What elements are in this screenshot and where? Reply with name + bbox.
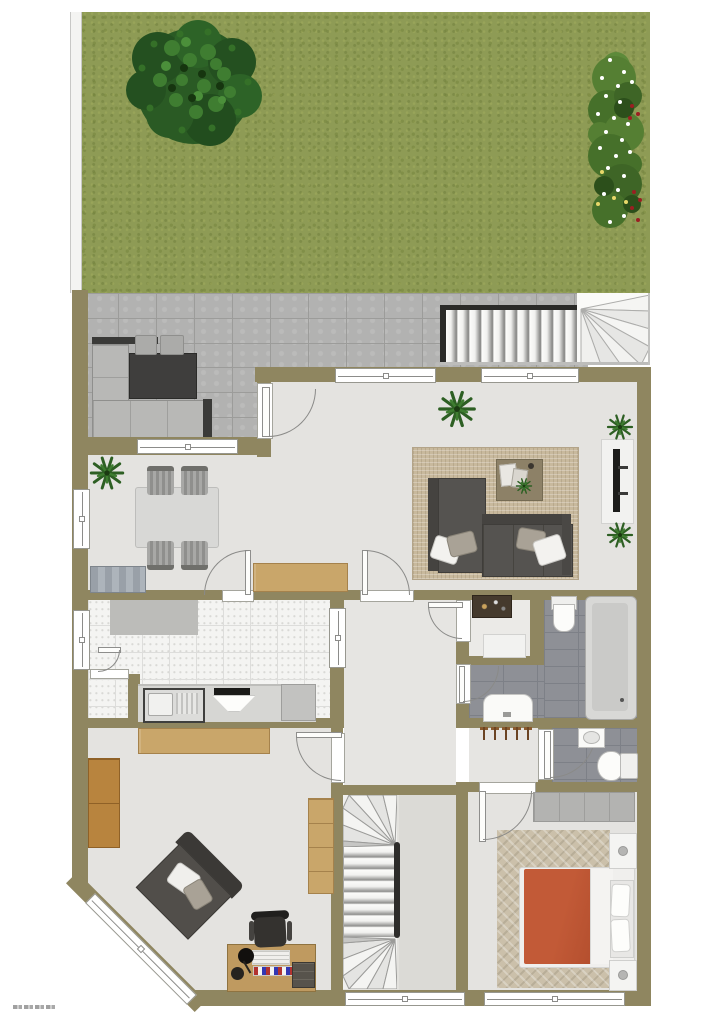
mug	[528, 463, 534, 469]
dining-chair	[147, 466, 174, 495]
nightstand-lamp	[618, 970, 628, 980]
coat-hook-stem	[527, 727, 529, 740]
office-chair-armrest	[249, 921, 254, 941]
garden-flower-bed	[580, 44, 652, 236]
window-kitchen-left	[73, 610, 90, 670]
gray-sideboard	[90, 566, 146, 593]
dining-chair	[181, 541, 208, 570]
sink-drainer	[176, 693, 198, 714]
tv-plant-bottom	[604, 519, 636, 551]
utility-cabinet	[472, 595, 512, 618]
window-living-top-1	[335, 368, 436, 383]
office-sideboard	[138, 728, 270, 754]
desk-item-round	[231, 967, 244, 980]
kitchen-appliance	[281, 684, 316, 721]
exterior-stairs-straight-flight	[446, 310, 577, 363]
bed-duvet	[524, 869, 592, 964]
outdoor-stool	[160, 335, 184, 355]
tv-bracket	[618, 466, 628, 469]
wall-exterior-right	[637, 367, 651, 1006]
desk-colored-sheet	[253, 966, 293, 976]
outdoor-sofa-seat	[92, 400, 205, 440]
floor-plan-canvas	[0, 0, 724, 1024]
tv-screen	[613, 449, 620, 512]
wc-basin-bowl	[583, 731, 600, 744]
dining-chair	[181, 466, 208, 495]
window-stair-room-bottom	[345, 992, 465, 1006]
kitchen-mat	[110, 599, 198, 635]
outdoor-stool	[135, 335, 157, 355]
office-bookshelf	[308, 798, 334, 894]
interior-stairs-straight-flight	[343, 847, 398, 937]
table-plant	[514, 476, 534, 496]
coat-hook-stem	[483, 727, 485, 740]
coat-hook-stem	[505, 727, 507, 740]
stair-landing-floor	[399, 795, 456, 990]
nightstand-lamp	[618, 846, 628, 856]
wc-cistern	[620, 753, 638, 779]
sofa-arm	[562, 514, 571, 575]
tv-bracket	[618, 492, 628, 495]
bedroom-wardrobe	[533, 792, 635, 822]
garden-fence	[70, 12, 82, 293]
garden-tree	[112, 8, 277, 168]
interior-stairs-winder-bottom	[343, 937, 397, 989]
watermark-text	[13, 1005, 55, 1009]
wall-stair-top	[331, 785, 468, 795]
tv-plant-top	[604, 411, 636, 443]
window-living-top-2	[481, 368, 579, 383]
wall-living-top	[255, 367, 650, 382]
exterior-stairs-bottom-edge	[440, 362, 650, 365]
wood-sideboard	[253, 563, 348, 592]
wall-utility-right	[530, 592, 544, 664]
window-kitchen-interior	[329, 608, 346, 668]
exterior-stairs-winder	[577, 293, 650, 365]
office-wardrobe	[88, 758, 120, 848]
outdoor-coffee-table	[129, 353, 197, 399]
dining-plant	[86, 452, 128, 494]
bathtub-drain	[620, 698, 624, 702]
bed-pillow	[610, 884, 631, 918]
door-threshold-pantry	[90, 669, 129, 679]
vanity-faucet	[503, 712, 511, 717]
coat-hook-stem	[494, 727, 496, 740]
window-dining-left	[73, 489, 90, 549]
toilet-bowl	[553, 604, 575, 632]
office-chair-armrest	[287, 921, 292, 941]
cooktop	[214, 688, 250, 695]
interior-stairs-winder-top	[343, 795, 397, 847]
window-dining-top	[137, 439, 238, 454]
desk-papers	[252, 950, 290, 965]
desk-tray	[292, 962, 315, 988]
outdoor-sofa-arm-frame	[203, 399, 212, 438]
sink-bowl	[148, 693, 173, 716]
coat-hook-stem	[516, 727, 518, 740]
bathtub-inner	[592, 603, 628, 711]
exterior-stairs-right-edge	[648, 293, 650, 365]
bed-pillow	[610, 919, 631, 953]
office-chair-seat	[253, 916, 287, 948]
living-plant-large	[434, 386, 480, 432]
vanity-sink	[483, 694, 533, 722]
dining-chair	[147, 541, 174, 570]
wall-stair-bedroom	[456, 782, 468, 990]
desk-lamp	[238, 948, 254, 964]
interior-stairs-handrail	[394, 842, 400, 938]
dining-table	[135, 487, 219, 548]
window-bedroom-bottom	[484, 992, 625, 1006]
utility-table	[483, 634, 526, 658]
wall-exterior-left	[72, 290, 88, 885]
